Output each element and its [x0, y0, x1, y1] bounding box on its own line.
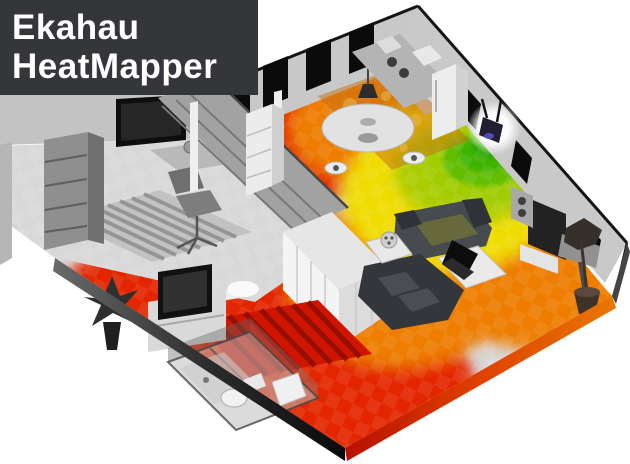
balcony-plant-pot-rim: [574, 287, 600, 297]
dining-chair-dot: [333, 165, 339, 171]
office-shelf: [44, 132, 88, 250]
glass-post: [190, 101, 198, 193]
brand-logo: Ekahau HeatMapper: [0, 0, 258, 95]
ball-speaker-dot: [387, 241, 390, 244]
heatmapper-screenshot: Ekahau HeatMapper: [0, 0, 630, 464]
bedside-oval: [227, 281, 259, 297]
plant-pot: [103, 322, 121, 350]
fridge-side: [456, 64, 468, 130]
speaker-cone: [518, 197, 526, 205]
hall-cabinet-side: [272, 104, 284, 186]
ball-speaker-dot: [384, 236, 387, 239]
brand-line1: Ekahau: [12, 8, 246, 47]
pendant-shadow: [360, 118, 376, 126]
stove-burner: [399, 68, 409, 78]
shower-drain: [203, 377, 209, 383]
stove-burner: [387, 57, 397, 67]
ball-speaker: [381, 232, 397, 248]
dining-table-base: [358, 133, 378, 143]
speaker-cone: [518, 209, 526, 217]
bedroom-tv-screen: [163, 270, 207, 313]
ball-speaker-dot: [390, 236, 393, 239]
dining-chair-dot: [411, 155, 417, 161]
dining-table: [322, 104, 414, 152]
brand-line2: HeatMapper: [12, 47, 246, 86]
access-point-led: [484, 133, 494, 139]
office-west-wall: [0, 142, 12, 265]
office-shelf-side: [88, 132, 104, 244]
